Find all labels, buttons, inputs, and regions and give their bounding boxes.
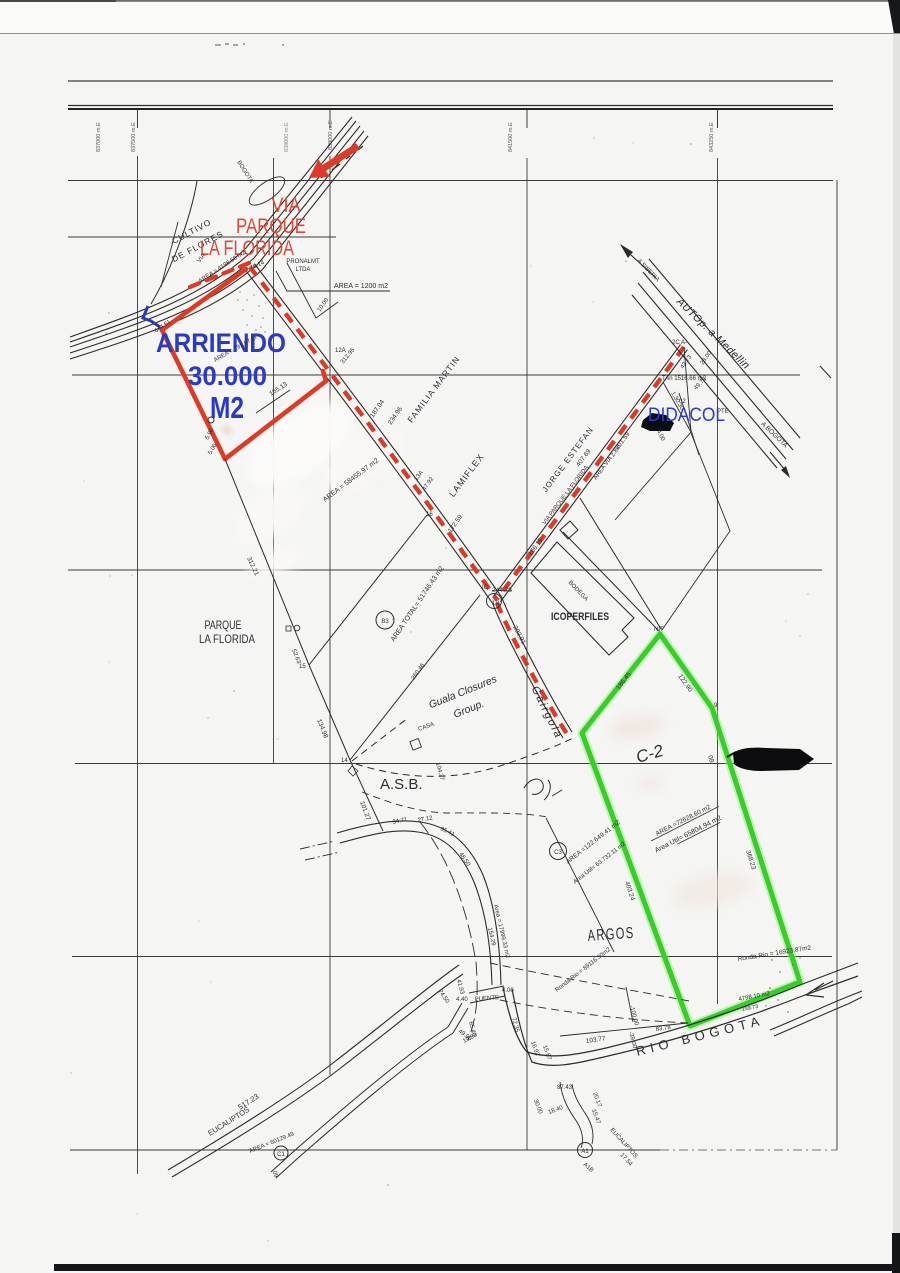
svg-text:PARQUE: PARQUE [236, 215, 306, 238]
svg-text:PARQUE: PARQUE [205, 618, 242, 632]
svg-text:14: 14 [341, 758, 348, 764]
svg-text:ARGOS: ARGOS [587, 925, 635, 945]
svg-text:838000 m.E: 838000 m.E [284, 122, 290, 152]
svg-text:A.S.B.: A.S.B. [380, 776, 423, 793]
svg-text:1B: 1B [492, 601, 499, 607]
svg-text:VIA: VIA [272, 194, 301, 217]
svg-text:30.000: 30.000 [188, 361, 267, 391]
svg-text:DIDACOL: DIDACOL [648, 404, 725, 426]
svg-text:AREA = 1200 m2: AREA = 1200 m2 [334, 283, 388, 290]
svg-text:IC: IC [482, 585, 489, 591]
svg-text:841500 m.E: 841500 m.E [508, 122, 514, 152]
svg-text:843250 m.E: 843250 m.E [709, 122, 715, 152]
svg-text:C1: C1 [277, 1152, 285, 1158]
svg-text:LTDA: LTDA [296, 267, 311, 273]
svg-text:LA FLORIDA: LA FLORIDA [200, 237, 294, 260]
svg-text:4.00: 4.00 [502, 988, 514, 994]
svg-text:PRONALMT: PRONALMT [286, 259, 320, 265]
svg-text:87.43: 87.43 [557, 1085, 573, 1091]
svg-text:12A: 12A [335, 348, 346, 354]
svg-text:837500 m.E: 837500 m.E [131, 122, 137, 152]
svg-text:B3: B3 [381, 619, 389, 625]
svg-text:16: 16 [426, 512, 433, 518]
svg-text:2C A-: 2C A- [672, 340, 687, 346]
svg-text:244.78: 244.78 [492, 587, 512, 594]
svg-text:LA FLORIDA: LA FLORIDA [199, 632, 255, 646]
svg-text:M2: M2 [210, 390, 244, 425]
svg-text:A1: A1 [581, 1149, 589, 1155]
svg-text:15: 15 [299, 664, 306, 670]
svg-text:C3: C3 [554, 850, 562, 856]
svg-text:ICOPERFILES: ICOPERFILES [551, 611, 609, 623]
svg-text:837000 m.E: 837000 m.E [96, 122, 102, 152]
svg-text:NIT: NIT [654, 627, 664, 633]
svg-text:4.40: 4.40 [456, 997, 468, 1003]
